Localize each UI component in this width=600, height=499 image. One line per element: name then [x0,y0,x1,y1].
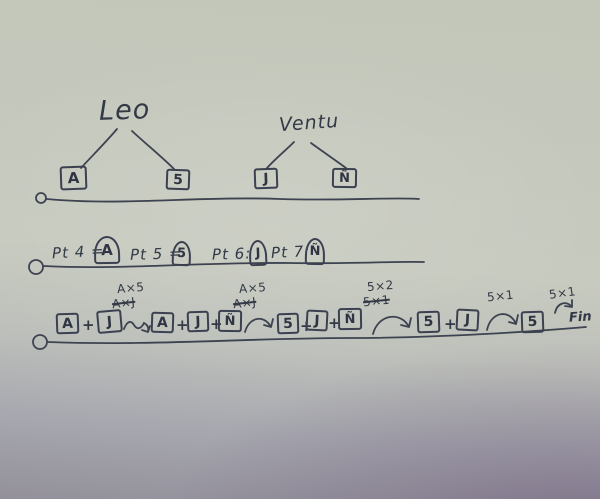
timeline1-start-circle [36,193,46,203]
seq-box: A [151,312,175,334]
ventu-branch-left-line [267,142,294,168]
swap-arrow-3-icon [373,317,411,334]
swap-arrow-1-icon [124,322,144,329]
swap-arrow-2-icon [245,319,273,332]
timeline3-start-circle [33,335,47,349]
seq-box: J [305,309,328,331]
point-def-text-6: Pt 6: [212,244,252,263]
leaf-box-a: A [60,166,88,191]
swap-annotation: 5×1 [486,288,514,305]
crossed-annotation: A×J [232,295,257,311]
seq-box: J [187,311,210,333]
fin-label: Fin [569,309,593,326]
leo-branch-right-line [132,131,174,169]
leaf-box-n: Ñ [332,168,357,188]
leo-branch-left-line [81,129,117,168]
swap-annotation: A×5 [116,280,145,296]
plus-sign: + [444,315,457,333]
paper-photo: Leo Ventu A 5 J Ñ Pt 4 = A Pt 5 = 5 Pt 6… [0,0,600,499]
seq-box: Ñ [218,310,242,332]
seq-box: J [455,308,479,331]
seq-box: J [96,309,123,334]
crossed-annotation: A×J [111,295,136,311]
seq-box: Ñ [338,308,362,330]
seq-box: 5 [417,311,441,334]
leaf-box-5: 5 [166,169,191,191]
plus-sign: + [82,316,95,334]
timeline2-start-circle [29,260,43,274]
seq-box: A [56,313,80,335]
swap-annotation: A×5 [239,280,267,296]
leaf-box-j: J [254,168,279,190]
timeline1-line [47,198,419,201]
seq-box: 5 [277,313,300,335]
tree-label-leo: Leo [98,94,150,127]
ventu-branch-right-line [311,143,346,168]
swap-annotation: 5×2 [366,278,394,294]
seq-box: 5 [521,311,545,334]
crossed-annotation: 5×1 [362,293,390,310]
tree-label-ventu: Ventu [278,110,339,136]
swap-arrow-4-icon [487,314,518,330]
